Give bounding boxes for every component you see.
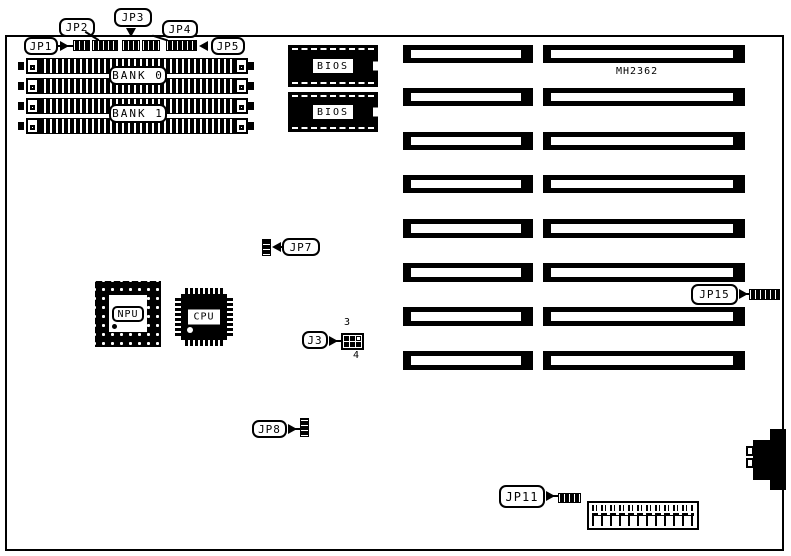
bank0-label: BANK 0: [109, 66, 167, 85]
chip-dashed-edge: [292, 48, 374, 50]
npu-label: NPU: [112, 306, 144, 322]
keyboard-connector-notch: [746, 458, 754, 468]
callout-jp8: JP8: [252, 420, 287, 438]
cpu-chip: CPU: [181, 294, 227, 340]
cpu-pins: [185, 340, 223, 346]
isa-slot: [543, 132, 745, 150]
isa-slot: [543, 175, 745, 193]
jumper-jp8-block: [300, 418, 309, 437]
simm-tab: [248, 62, 254, 70]
simm-tab: [18, 82, 24, 90]
bios-chip-1: BIOS: [288, 45, 378, 87]
jp4-label: JP4: [169, 24, 192, 35]
j3-pin: [356, 336, 361, 341]
j3-pin: [344, 342, 349, 347]
jp15-label: JP15: [699, 289, 730, 300]
callout-jp4: JP4: [162, 20, 198, 38]
cpu-pins: [175, 298, 181, 336]
jp7-label: JP7: [290, 242, 313, 253]
simm-clip-right: [235, 98, 248, 114]
j3-label: J3: [307, 335, 322, 346]
isa-slot: [403, 307, 533, 326]
isa-slot: [543, 307, 745, 326]
cpu-pins: [185, 288, 223, 294]
j3-pin: [350, 342, 355, 347]
keyboard-connector: [753, 440, 786, 480]
isa-slot: [543, 88, 745, 106]
callout-jp5: JP5: [211, 37, 245, 55]
jp3-label: JP3: [122, 12, 145, 23]
jumper-jp15-block: [749, 289, 780, 300]
simm-tab: [248, 82, 254, 90]
npu-socket: NPU: [95, 281, 161, 347]
j3-connector: [341, 333, 364, 350]
callout-jp3: JP3: [114, 8, 152, 27]
isa-slot: [543, 351, 745, 370]
j3-pin: [356, 342, 361, 347]
model-label: MH2362: [616, 66, 658, 77]
jumper-jp3-block: [122, 40, 140, 51]
jumper-jp1-block: [73, 40, 90, 51]
bank1-label: BANK 1: [109, 104, 167, 123]
j3-pin4-label: 4: [353, 351, 359, 361]
bios2-label: BIOS: [312, 104, 354, 120]
power-connector: [587, 501, 699, 530]
isa-slot: [543, 45, 745, 63]
chip-notch: [373, 108, 378, 117]
callout-pointer-line: [552, 495, 559, 497]
simm-tab: [248, 102, 254, 110]
jumper-jp2-block: [92, 40, 118, 51]
jumper-jp4-block: [142, 40, 160, 51]
callout-pointer-line: [745, 293, 750, 295]
simm-clip-left: [26, 118, 39, 134]
chip-dashed-edge: [292, 95, 374, 97]
isa-slot: [403, 175, 533, 193]
connector-pins: [592, 505, 694, 511]
simm-tab: [18, 102, 24, 110]
simm-clip-left: [26, 78, 39, 94]
jp5-label: JP5: [217, 41, 240, 52]
callout-jp1: JP1: [24, 37, 58, 55]
keyboard-connector-notch: [746, 446, 754, 456]
callout-pointer-line: [277, 246, 284, 248]
callout-pointer-line: [295, 428, 301, 430]
simm-clip-right: [235, 118, 248, 134]
simm-clip-right: [235, 58, 248, 74]
isa-slot: [403, 132, 533, 150]
j3-pin: [350, 336, 355, 341]
isa-slot: [403, 88, 533, 106]
bios1-label: BIOS: [312, 58, 354, 74]
jp8-label: JP8: [258, 424, 281, 435]
isa-slot: [543, 219, 745, 238]
callout-jp11: JP11: [499, 485, 545, 508]
motherboard-diagram: JP1 JP2 JP3 JP4 JP5 BANK 0: [0, 0, 791, 556]
jp11-label: JP11: [506, 491, 539, 503]
callout-pointer-line: [58, 45, 73, 47]
callout-pointer-line: [336, 340, 342, 342]
callout-pointer: [126, 28, 136, 37]
chip-dashed-edge: [292, 82, 374, 84]
j3-pin3-label: 3: [344, 318, 350, 328]
bios-chip-2: BIOS: [288, 92, 378, 132]
callout-jp7: JP7: [282, 238, 320, 256]
isa-slot: [543, 263, 745, 282]
isa-slot: [403, 45, 533, 63]
callout-pointer: [199, 41, 208, 51]
cpu-pins: [227, 298, 233, 336]
chip-dashed-edge: [292, 127, 374, 129]
j3-pin: [344, 336, 349, 341]
isa-slot: [403, 351, 533, 370]
jumper-jp11-block: [558, 493, 581, 503]
jp1-label: JP1: [30, 41, 53, 52]
pin1-dot: [112, 324, 117, 329]
jumper-jp7-block: [262, 239, 271, 256]
chip-notch: [373, 62, 378, 71]
simm-clip-left: [26, 98, 39, 114]
cpu-label: CPU: [188, 310, 220, 325]
simm-tab: [18, 122, 24, 130]
jumper-jp5-block: [166, 40, 197, 51]
callout-jp15: JP15: [691, 284, 738, 305]
connector-pins: [592, 515, 694, 526]
pin1-dot: [187, 327, 193, 333]
simm-clip-left: [26, 58, 39, 74]
simm-clip-right: [235, 78, 248, 94]
simm-tab: [248, 122, 254, 130]
isa-slot: [403, 219, 533, 238]
simm-tab: [18, 62, 24, 70]
isa-slot: [403, 263, 533, 282]
callout-j3: J3: [302, 331, 328, 349]
